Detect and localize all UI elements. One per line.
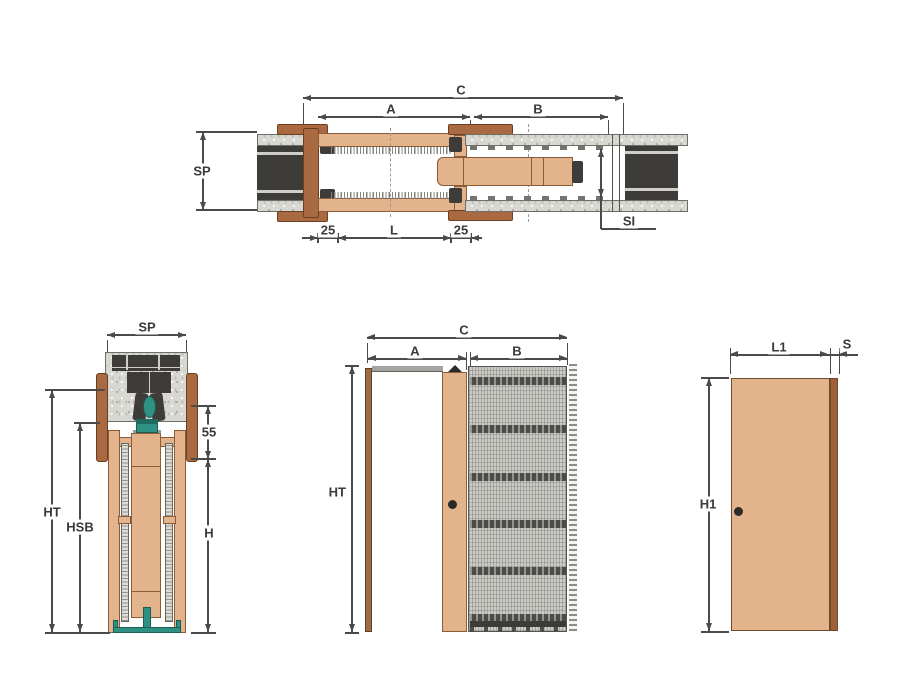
dim-s-label: S [840, 337, 855, 352]
door-edge-strip [830, 378, 838, 631]
extension-line [701, 377, 729, 378]
dim-s-line [828, 354, 839, 355]
extension-line [730, 348, 731, 374]
arrowhead [839, 351, 847, 357]
door-leaf [731, 378, 830, 631]
arrowhead [730, 351, 738, 357]
pocket-door-technical-drawing: C A B SP [0, 0, 900, 675]
extension-line [830, 348, 831, 374]
arrowhead [820, 351, 828, 357]
dim-l1-label: L1 [768, 340, 789, 355]
extension-line [701, 631, 729, 632]
dim-h1-label: H1 [697, 497, 720, 512]
arrowhead [706, 378, 712, 386]
door-knob [734, 507, 743, 516]
door-leaf-view: L1 S H1 [0, 0, 900, 675]
dim-l1-line [730, 354, 828, 355]
arrowhead [706, 623, 712, 631]
